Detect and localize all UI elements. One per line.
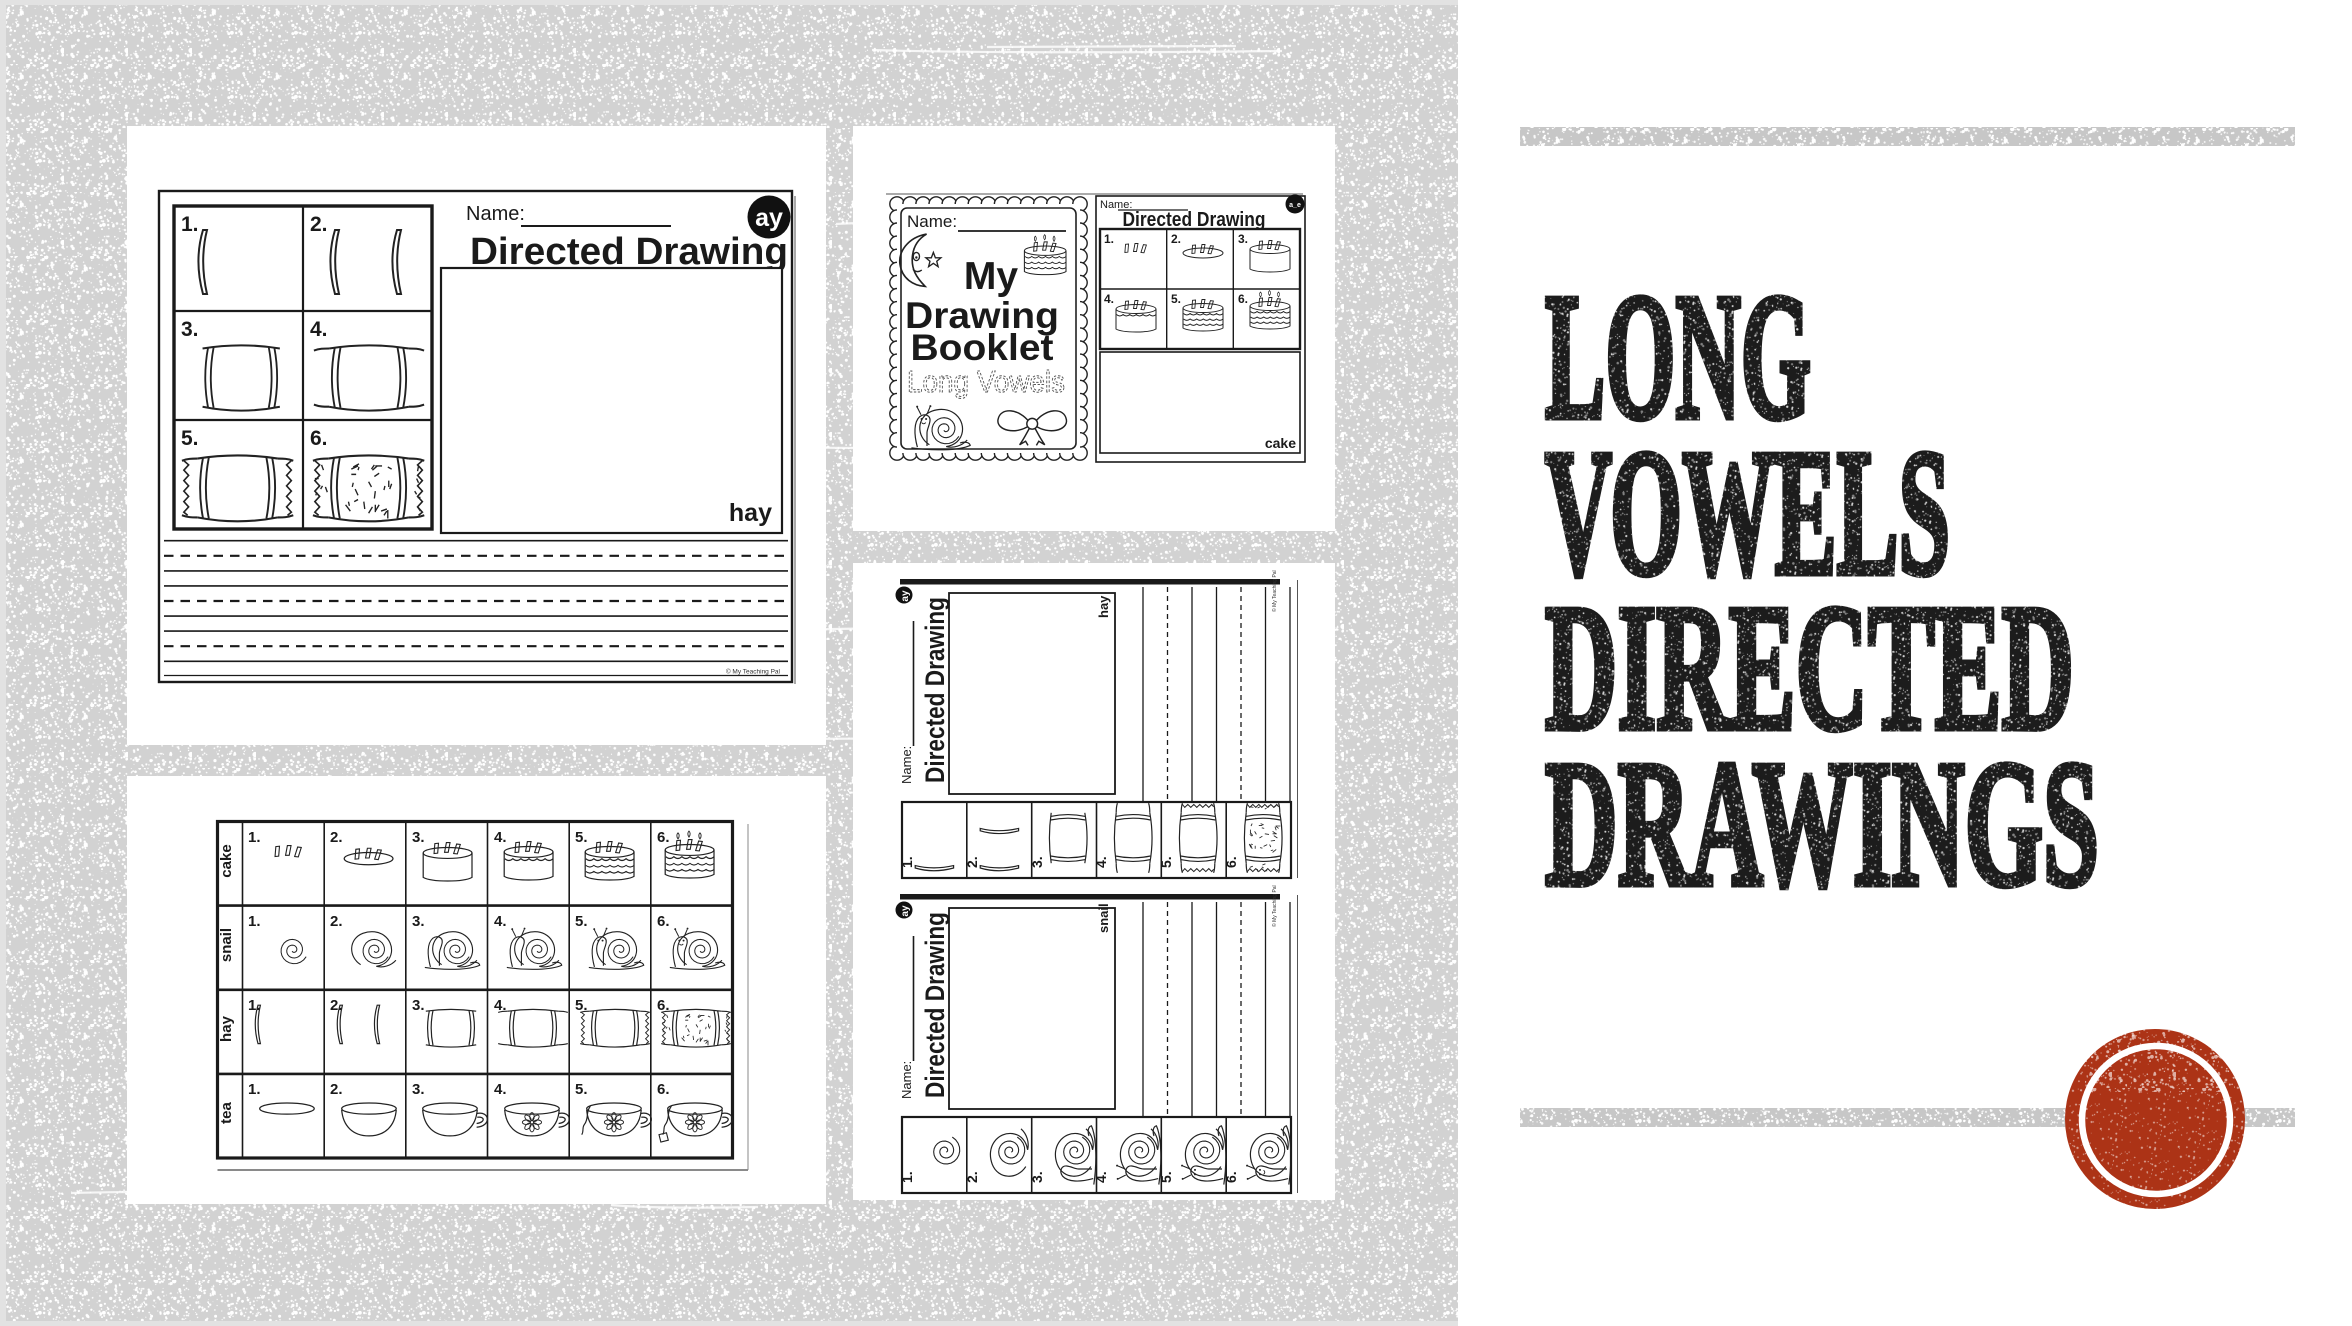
svg-text:5.: 5. bbox=[181, 427, 199, 450]
svg-text:5.: 5. bbox=[575, 913, 588, 930]
svg-text:1.: 1. bbox=[899, 1171, 915, 1183]
svg-text:6.: 6. bbox=[657, 829, 670, 846]
svg-text:5.: 5. bbox=[575, 829, 588, 846]
svg-text:3.: 3. bbox=[412, 1081, 425, 1098]
svg-text:© My Teaching Pal: © My Teaching Pal bbox=[1271, 885, 1278, 927]
svg-text:3.: 3. bbox=[181, 318, 199, 341]
svg-text:1.: 1. bbox=[248, 1081, 261, 1098]
svg-text:tea: tea bbox=[218, 1102, 235, 1124]
svg-text:snail: snail bbox=[218, 928, 235, 962]
svg-text:6.: 6. bbox=[1223, 856, 1239, 868]
svg-text:6.: 6. bbox=[1223, 1171, 1239, 1183]
svg-text:4.: 4. bbox=[310, 318, 328, 341]
svg-text:5.: 5. bbox=[575, 1081, 588, 1098]
svg-text:© My Teaching Pal: © My Teaching Pal bbox=[726, 668, 781, 676]
svg-text:3.: 3. bbox=[1029, 856, 1045, 868]
svg-text:Name:: Name: bbox=[899, 1061, 914, 1099]
svg-text:4.: 4. bbox=[1104, 292, 1114, 306]
svg-text:Directed Drawing: Directed Drawing bbox=[920, 912, 950, 1098]
svg-text:1.: 1. bbox=[248, 913, 261, 930]
svg-text:5.: 5. bbox=[1158, 1171, 1174, 1183]
svg-text:1.: 1. bbox=[181, 213, 199, 236]
svg-text:6.: 6. bbox=[657, 1081, 670, 1098]
svg-text:cake: cake bbox=[1265, 435, 1296, 451]
svg-text:snail: snail bbox=[1096, 903, 1111, 933]
svg-text:2.: 2. bbox=[964, 1171, 980, 1183]
svg-text:2.: 2. bbox=[330, 1081, 343, 1098]
svg-text:hay: hay bbox=[218, 1015, 235, 1042]
svg-text:6.: 6. bbox=[310, 427, 328, 450]
svg-text:Long Vowels: Long Vowels bbox=[907, 364, 1065, 399]
svg-text:4.: 4. bbox=[1093, 856, 1109, 868]
svg-text:2.: 2. bbox=[964, 856, 980, 868]
svg-text:Directed Drawing: Directed Drawing bbox=[1123, 209, 1266, 231]
svg-text:3.: 3. bbox=[1029, 1171, 1045, 1183]
svg-text:Booklet: Booklet bbox=[911, 327, 1054, 368]
svg-text:a_e: a_e bbox=[1289, 202, 1301, 209]
svg-text:2.: 2. bbox=[330, 913, 343, 930]
svg-text:ay: ay bbox=[900, 905, 911, 917]
svg-text:Name:: Name: bbox=[899, 746, 914, 784]
svg-text:hay: hay bbox=[729, 499, 772, 527]
svg-text:6.: 6. bbox=[1238, 292, 1248, 306]
svg-text:Name:: Name: bbox=[907, 212, 957, 231]
svg-text:6.: 6. bbox=[657, 913, 670, 930]
svg-text:3.: 3. bbox=[412, 829, 425, 846]
svg-text:5.: 5. bbox=[1158, 856, 1174, 868]
svg-text:4.: 4. bbox=[1093, 1171, 1109, 1183]
svg-text:Directed Drawing: Directed Drawing bbox=[920, 597, 950, 783]
svg-text:2.: 2. bbox=[1171, 232, 1181, 246]
svg-text:hay: hay bbox=[1096, 595, 1111, 618]
svg-text:Directed Drawing: Directed Drawing bbox=[470, 231, 788, 273]
svg-text:ay: ay bbox=[900, 590, 911, 602]
svg-text:4.: 4. bbox=[494, 913, 507, 930]
svg-text:© My Teaching Pal: © My Teaching Pal bbox=[1271, 570, 1278, 612]
svg-text:1.: 1. bbox=[1104, 232, 1114, 246]
svg-text:3.: 3. bbox=[412, 913, 425, 930]
svg-text:cake: cake bbox=[218, 844, 235, 877]
svg-text:Name:: Name: bbox=[466, 203, 525, 225]
svg-text:1.: 1. bbox=[248, 829, 261, 846]
svg-text:ay: ay bbox=[755, 204, 783, 232]
svg-text:1.: 1. bbox=[899, 856, 915, 868]
svg-text:3.: 3. bbox=[1238, 232, 1248, 246]
svg-text:4.: 4. bbox=[494, 829, 507, 846]
svg-text:2.: 2. bbox=[310, 213, 328, 236]
svg-text:My: My bbox=[964, 255, 1018, 298]
svg-text:5.: 5. bbox=[1171, 292, 1181, 306]
svg-text:4.: 4. bbox=[494, 1081, 507, 1098]
svg-text:2.: 2. bbox=[330, 829, 343, 846]
svg-text:3.: 3. bbox=[412, 997, 425, 1014]
